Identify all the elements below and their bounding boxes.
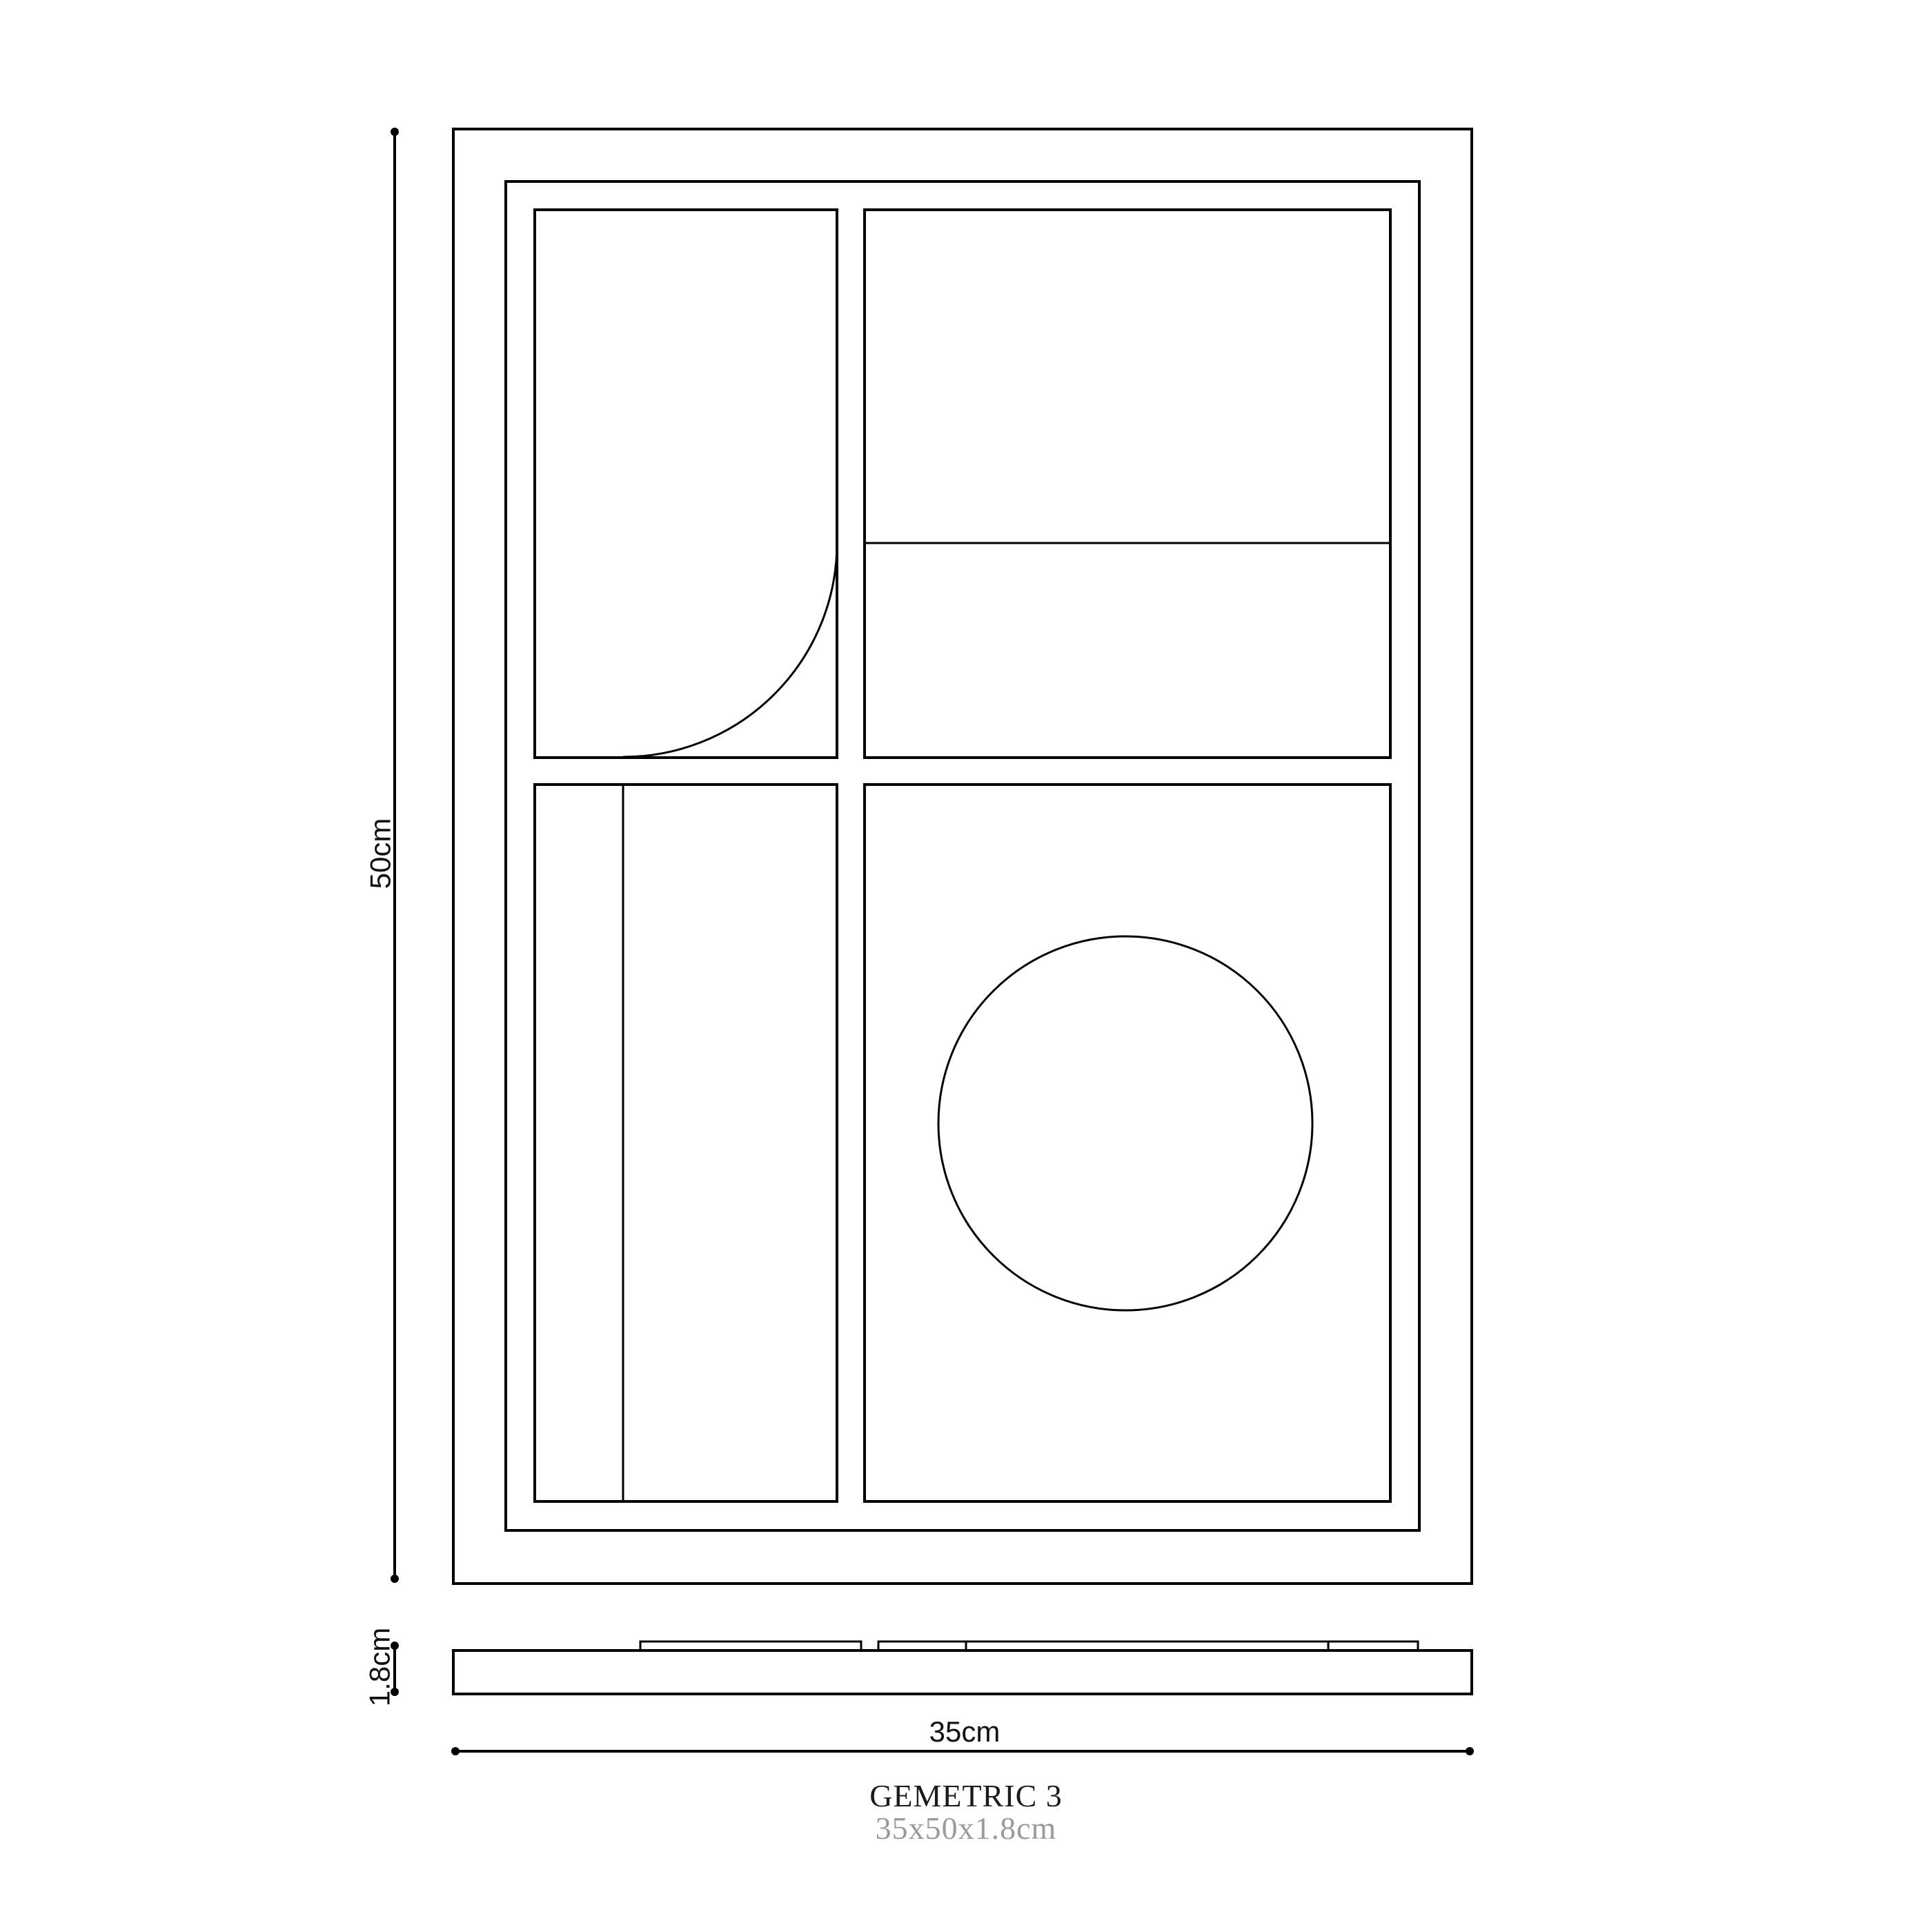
side-profile-body <box>453 1650 1472 1694</box>
dimension-end-dot <box>451 1747 460 1755</box>
width-dimension-label: 35cm <box>929 1715 1000 1748</box>
height-dimension-label: 50cm <box>364 818 397 889</box>
width-dimension: 35cm <box>451 1715 1474 1755</box>
circle-motif <box>938 936 1312 1310</box>
height-dimension: 50cm <box>364 128 400 1583</box>
dimension-end-dot <box>1466 1747 1474 1755</box>
product-dimensions: 35x50x1.8cm <box>876 1811 1057 1846</box>
thickness-dimension: 1.8cm <box>364 1628 400 1706</box>
product-title: GEMETRIC 3 <box>869 1778 1063 1813</box>
quarter-arc-line <box>623 543 837 757</box>
technical-drawing-page: 50cm 1.8cm 35cm GEMETRIC 3 35x50x1.8cm <box>0 0 1932 1932</box>
caption: GEMETRIC 3 35x50x1.8cm <box>869 1778 1063 1846</box>
front-view <box>453 129 1472 1584</box>
dimension-end-dot <box>391 1575 399 1583</box>
front-inner-frame <box>506 181 1419 1530</box>
compartment-top-right <box>865 210 1390 758</box>
dimension-end-dot <box>391 128 399 136</box>
side-view <box>453 1642 1472 1694</box>
compartment-bottom-left <box>535 785 837 1501</box>
technical-drawing: 50cm 1.8cm 35cm GEMETRIC 3 35x50x1.8cm <box>0 0 1932 1932</box>
front-outer-frame <box>453 129 1472 1584</box>
thickness-dimension-label: 1.8cm <box>364 1628 396 1706</box>
